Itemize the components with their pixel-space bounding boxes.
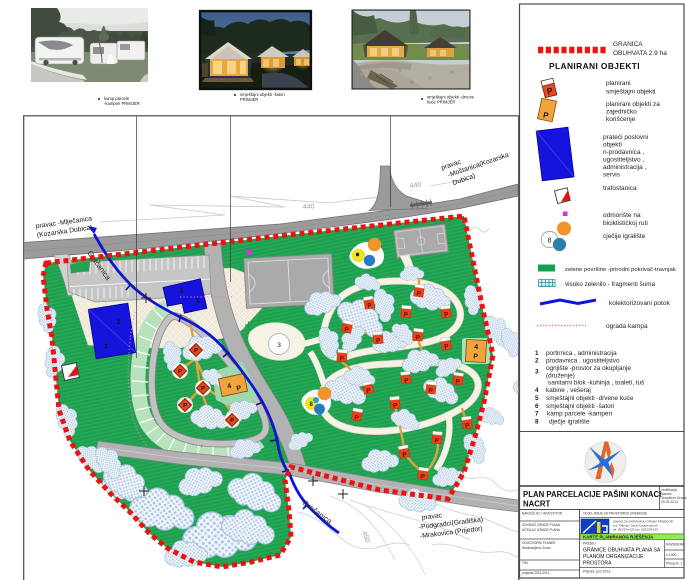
svg-text:5: 5: [535, 395, 539, 402]
svg-text:PLAN PARCELACIJE PAŠINI KONACI: PLAN PARCELACIJE PAŠINI KONACI: [523, 490, 661, 499]
svg-text:trafostanica: trafostanica: [603, 185, 637, 192]
svg-text:PLANOM ORGANIZACIJE: PLANOM ORGANIZACIJE: [583, 554, 644, 560]
svg-text:NARUČILAC I INVESTITOR: NARUČILAC I INVESTITOR: [522, 511, 563, 516]
svg-text:Prilog br.:1: Prilog br.:1: [666, 562, 682, 566]
svg-text:objekti: objekti: [603, 142, 622, 149]
svg-text:1:1000: 1:1000: [666, 553, 676, 557]
svg-text:GRANICA: GRANICA: [613, 41, 643, 48]
svg-text:ograda kampa: ograda kampa: [606, 323, 648, 330]
svg-text:cjeĉije igralište: cjeĉije igralište: [603, 233, 646, 240]
svg-text:NOSILAC IZRADE PLANA: NOSILAC IZRADE PLANA: [522, 528, 561, 532]
svg-text:2: 2: [535, 358, 539, 365]
svg-text:PREDIO: PREDIO: [583, 542, 596, 546]
svg-text:PROSTORA: PROSTORA: [583, 561, 612, 567]
svg-text:planirani objekti za: planirani objekti za: [606, 101, 660, 108]
svg-text:visoko zelenilo - fragmenti: visoko zelenilo - fragmenti šuma: [565, 281, 655, 288]
svg-text:GRANICE OBUHVATA PLANA SA: GRANICE OBUHVATA PLANA SA: [583, 548, 661, 554]
svg-text:biciklističkoj ruti: biciklističkoj ruti: [603, 220, 648, 227]
svg-text:PLANIRANI OBJEKTI: PLANIRANI OBJEKTI: [549, 61, 640, 71]
svg-text:7: 7: [535, 411, 539, 418]
svg-text:smještajni objekti -drvene ku: smještajni objekti -drvene kuće: [546, 395, 634, 402]
svg-text:administracija ,: administracija ,: [603, 164, 647, 171]
svg-text:3: 3: [535, 369, 539, 376]
svg-text:P: P: [473, 353, 478, 360]
svg-text:servis: servis: [603, 172, 621, 179]
svg-text:OBUHVATA 2.9 ha: OBUHVATA 2.9 ha: [613, 50, 667, 57]
svg-text:KARTE PLANIRANOG RJEŠENJA: KARTE PLANIRANOG RJEŠENJA: [583, 535, 654, 540]
svg-text:4: 4: [474, 344, 478, 351]
svg-text:NACRT: NACRT: [523, 500, 551, 509]
svg-text:05.06.2013.: 05.06.2013.: [661, 500, 679, 504]
svg-text:kolektorizovani potok: kolektorizovani potok: [609, 300, 670, 307]
svg-text:8: 8: [548, 238, 552, 245]
svg-text:Prijedor, juni 2013.: Prijedor, juni 2013.: [583, 570, 611, 574]
svg-text:prodavnica . ugostiteljstvo: prodavnica . ugostiteljstvo: [546, 358, 620, 365]
svg-text:8: 8: [535, 419, 539, 426]
svg-text:PRIMJER: PRIMJER: [240, 97, 258, 102]
svg-text:-kamperi PRIMJER: -kamperi PRIMJER: [104, 101, 140, 106]
svg-text:6: 6: [535, 403, 539, 410]
svg-text:ODGOVORNI PLANER: ODGOVORNI PLANER: [522, 541, 556, 545]
svg-text:TIM:: TIM:: [522, 561, 528, 565]
svg-text:odmorište na: odmorište na: [603, 212, 641, 219]
svg-text:ODJELJENJE ZA PROSTORNO UREĐEN: ODJELJENJE ZA PROSTORNO UREĐENJE: [583, 512, 647, 516]
svg-text:kamp parcele -kamperi: kamp parcele -kamperi: [547, 411, 612, 418]
svg-text:4: 4: [535, 387, 539, 394]
svg-text:(druženje): (druženje): [546, 373, 575, 380]
svg-text:zelene površine -prirodni pok: zelene površine -prirodni pokrivač-travn…: [565, 267, 676, 273]
svg-text:portirnica , administracija: portirnica , administracija: [546, 350, 617, 357]
svg-text:prateći poslovni: prateći poslovni: [603, 134, 648, 141]
svg-text:440: 440: [303, 203, 315, 211]
svg-text:zajedničko: zajedničko: [606, 109, 637, 116]
svg-text:sanitarni blok -kuhinja , toal: sanitarni blok -kuhinja , toaleti, tuš: [548, 380, 644, 387]
svg-text:dječje igralište: dječje igralište: [549, 419, 590, 426]
svg-text:RAZMJERA :: RAZMJERA :: [666, 543, 686, 547]
svg-text:ognjište -prostor za okuplja: ognjište -prostor za okupljanje: [546, 365, 631, 372]
svg-text:3: 3: [277, 342, 281, 349]
svg-text:planirani: planirani: [606, 80, 631, 87]
svg-text:n-prodavnica ,: n-prodavnica ,: [603, 149, 644, 156]
svg-text:projekat 2013-2014: projekat 2013-2014: [522, 571, 550, 575]
svg-text:korišćenje: korišćenje: [606, 116, 636, 123]
svg-text:smještajni objekti -šatori: smještajni objekti -šatori: [546, 403, 614, 410]
svg-text:1: 1: [535, 350, 539, 357]
svg-text:tel: 052/234-222 fax: 052/234-: tel: 052/234-222 fax: 052/234-223: [613, 528, 658, 532]
svg-text:IZVOĐAČ IZRADE PLANA: IZVOĐAČ IZRADE PLANA: [522, 522, 561, 527]
svg-text:kabine , vešeraj: kabine , vešeraj: [546, 387, 591, 394]
svg-text:ugostiteljstvo ,: ugostiteljstvo ,: [603, 157, 644, 164]
svg-text:kuće PRIMJER: kuće PRIMJER: [427, 100, 455, 105]
svg-text:Stanisavljević Zoran: Stanisavljević Zoran: [522, 546, 551, 550]
svg-text:smještajni objekti: smještajni objekti: [606, 89, 656, 96]
